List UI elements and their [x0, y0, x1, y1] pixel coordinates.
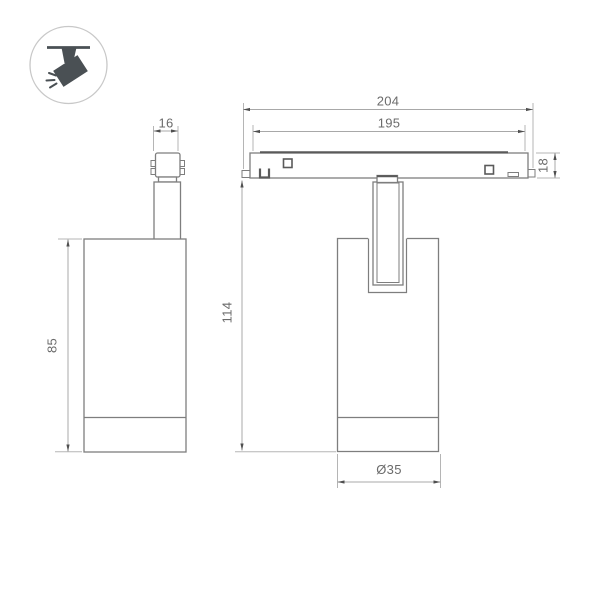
lamp-body — [84, 239, 186, 452]
track-end-tab — [528, 170, 535, 178]
track-detail-square — [485, 166, 494, 175]
dim-label-diameter: Ø35 — [376, 462, 401, 477]
dimension-adapter-width: 16 — [154, 116, 179, 152]
dim-label-85: 85 — [45, 338, 60, 353]
technical-drawing-page: 16 85 2 — [0, 0, 600, 600]
adapter-neck — [159, 177, 177, 182]
dimension-body-height: 85 — [45, 239, 83, 452]
dimension-track-height: 18 — [536, 153, 561, 178]
dim-label-16: 16 — [158, 116, 173, 131]
dimension-track-length-inner: 195 — [253, 116, 525, 152]
side-view — [84, 153, 186, 452]
dimension-overall-height: 114 — [220, 181, 337, 452]
dim-label-114: 114 — [220, 302, 235, 324]
dim-label-18: 18 — [536, 158, 551, 173]
track-adapter — [156, 153, 181, 177]
arm-stem — [154, 182, 181, 240]
front-view — [242, 152, 535, 451]
dim-label-204: 204 — [377, 94, 400, 109]
track-detail-square — [284, 159, 293, 168]
dim-label-195: 195 — [378, 116, 401, 131]
track-end-tab — [242, 171, 250, 178]
dimension-drawing: 16 85 2 — [0, 0, 600, 600]
track-spotlight-icon — [30, 27, 107, 104]
dimension-body-diameter: Ø35 — [338, 454, 441, 488]
